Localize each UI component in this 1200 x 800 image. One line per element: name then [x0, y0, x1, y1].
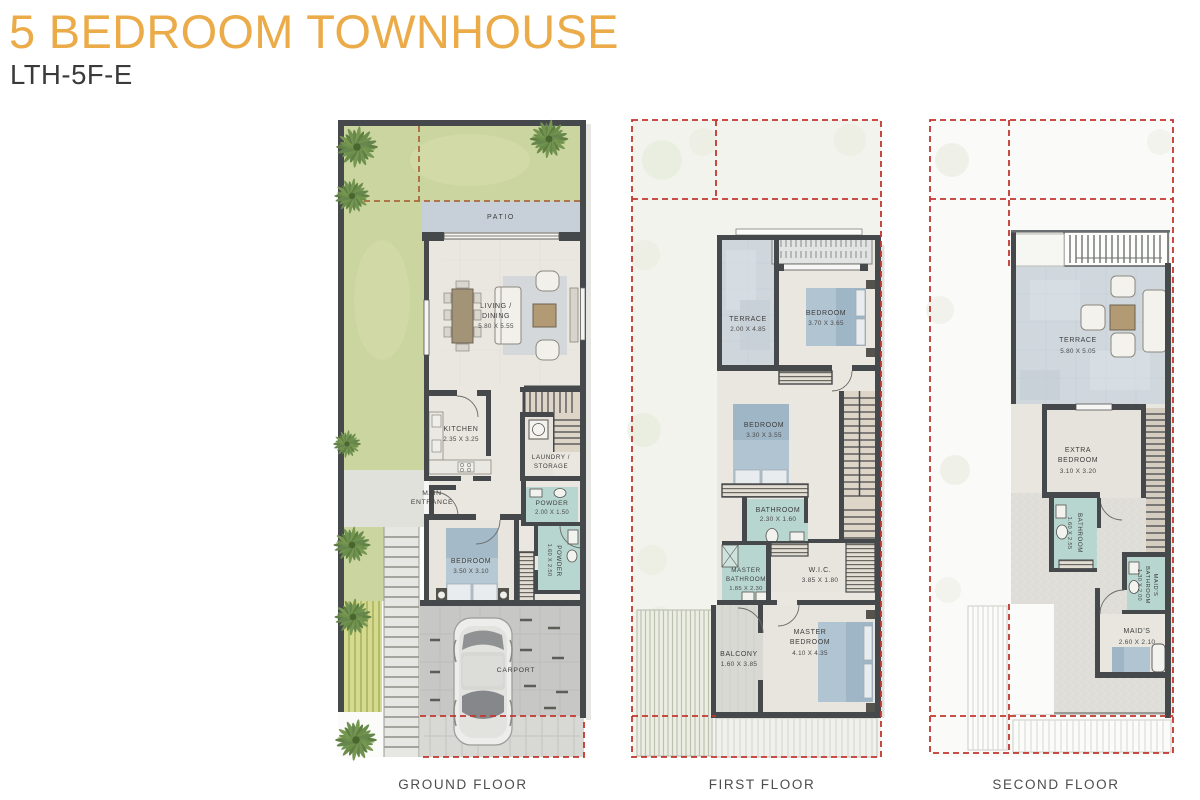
svg-text:2.35 X 3.25: 2.35 X 3.25 — [443, 436, 479, 443]
svg-text:BEDROOM: BEDROOM — [806, 310, 846, 317]
svg-text:POWDER: POWDER — [536, 500, 569, 507]
svg-text:BEDROOM: BEDROOM — [744, 422, 784, 429]
svg-text:MAID'S: MAID'S — [1152, 573, 1158, 596]
svg-text:BALCONY: BALCONY — [720, 651, 758, 658]
svg-text:CARPORT: CARPORT — [497, 667, 536, 674]
svg-text:BEDROOM: BEDROOM — [1058, 457, 1098, 464]
svg-text:5.80 X 5.55: 5.80 X 5.55 — [478, 323, 514, 330]
svg-text:BEDROOM: BEDROOM — [790, 639, 830, 646]
svg-text:2.30 X 1.60: 2.30 X 1.60 — [760, 516, 797, 523]
svg-text:3.85 X 1.80: 3.85 X 1.80 — [802, 577, 839, 584]
svg-text:TERRACE: TERRACE — [729, 316, 767, 323]
svg-text:3.30 X 3.55: 3.30 X 3.55 — [746, 432, 782, 439]
svg-text:MAID'S: MAID'S — [1123, 628, 1150, 635]
svg-text:LAUNDRY /: LAUNDRY / — [532, 454, 570, 461]
svg-text:POWDER: POWDER — [555, 545, 562, 576]
svg-text:3.10 X 3.20: 3.10 X 3.20 — [1060, 468, 1097, 475]
svg-text:KITCHEN: KITCHEN — [444, 426, 479, 433]
svg-text:BATHROOM: BATHROOM — [1144, 566, 1150, 604]
svg-text:2.60 X 2.10: 2.60 X 2.10 — [1119, 639, 1156, 646]
svg-text:BEDROOM: BEDROOM — [451, 558, 491, 565]
svg-text:2.00 X 1.50: 2.00 X 1.50 — [535, 510, 569, 516]
svg-text:ENTRANCE: ENTRANCE — [411, 499, 453, 506]
svg-text:1.60 X 2.55: 1.60 X 2.55 — [1066, 517, 1072, 550]
svg-text:1.85 X 2.30: 1.85 X 2.30 — [729, 586, 763, 592]
svg-text:DINING: DINING — [482, 313, 510, 320]
svg-text:BATHROOM: BATHROOM — [756, 507, 801, 514]
svg-text:TERRACE: TERRACE — [1059, 337, 1097, 344]
svg-text:BATHROOM: BATHROOM — [1076, 513, 1083, 553]
svg-text:3.70 X 3.65: 3.70 X 3.65 — [808, 320, 844, 327]
svg-text:5.80 X 5.05: 5.80 X 5.05 — [1060, 348, 1096, 355]
svg-text:4.10 X 4.35: 4.10 X 4.35 — [792, 650, 828, 657]
svg-text:PATIO: PATIO — [487, 214, 515, 221]
svg-text:1.60 X 3.85: 1.60 X 3.85 — [721, 661, 758, 668]
svg-text:BATHROOM: BATHROOM — [726, 576, 766, 583]
svg-text:MASTER: MASTER — [794, 629, 827, 636]
svg-text:STORAGE: STORAGE — [534, 463, 568, 470]
svg-text:1.60 X 2.50: 1.60 X 2.50 — [546, 544, 552, 577]
svg-text:1.30 X 2.00: 1.30 X 2.00 — [1136, 569, 1142, 601]
svg-text:MAIN: MAIN — [422, 490, 441, 497]
svg-text:W.I.C.: W.I.C. — [809, 567, 832, 574]
svg-text:2.00 X 4.85: 2.00 X 4.85 — [730, 326, 766, 333]
svg-text:EXTRA: EXTRA — [1065, 447, 1091, 454]
svg-text:3.50 X 3.10: 3.50 X 3.10 — [453, 568, 489, 575]
svg-text:LIVING /: LIVING / — [480, 303, 512, 310]
svg-text:MASTER: MASTER — [731, 567, 760, 574]
